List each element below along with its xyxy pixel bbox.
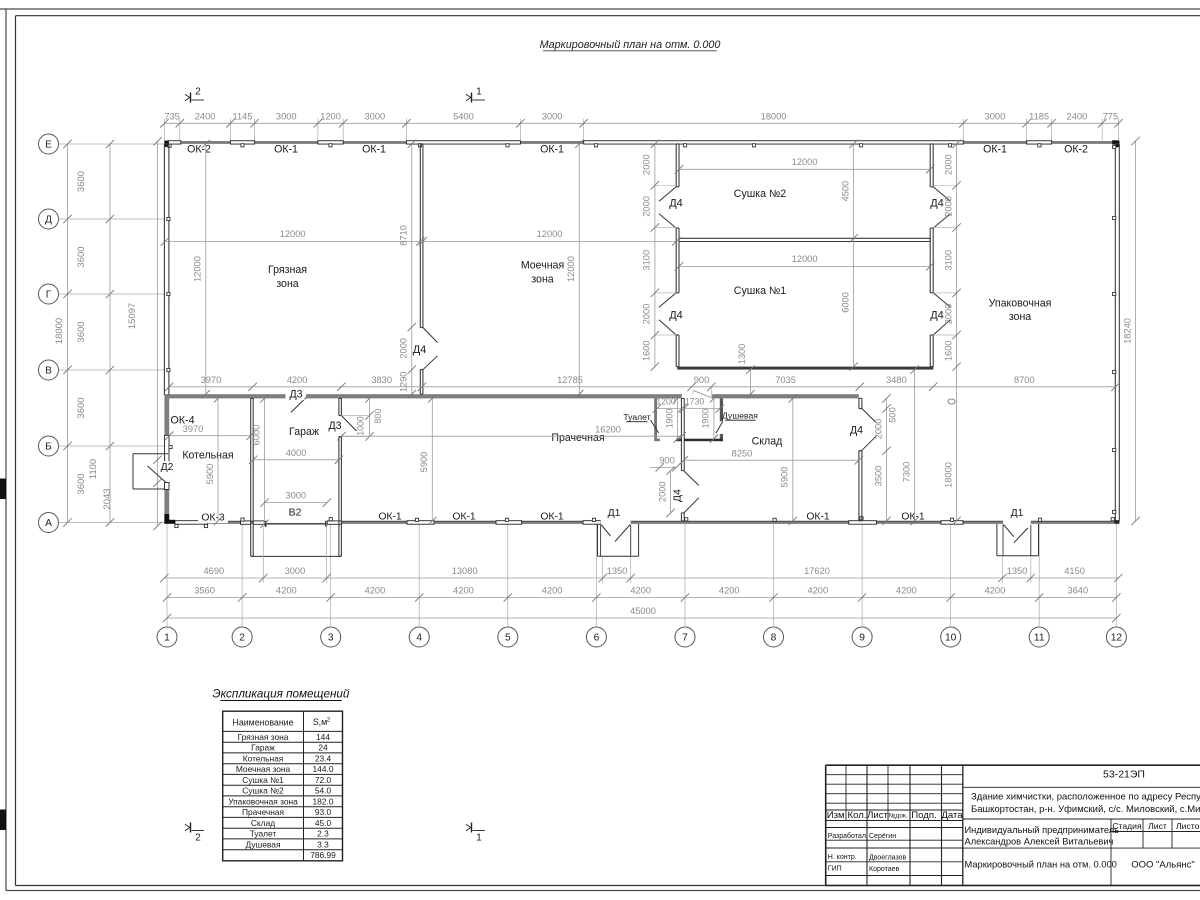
svg-text:2000: 2000 bbox=[642, 196, 652, 217]
svg-text:Маркировочный план на отм. 0.0: Маркировочный план на отм. 0.000 bbox=[540, 39, 721, 51]
svg-text:Д1: Д1 bbox=[1011, 508, 1024, 519]
svg-text:12000: 12000 bbox=[537, 229, 563, 239]
svg-text:ОК-1: ОК-1 bbox=[274, 143, 298, 155]
svg-text:16200: 16200 bbox=[595, 424, 621, 434]
svg-text:12785: 12785 bbox=[557, 375, 583, 385]
svg-text:900: 900 bbox=[659, 456, 675, 466]
svg-text:5900: 5900 bbox=[780, 467, 790, 488]
svg-text:2400: 2400 bbox=[1067, 112, 1088, 122]
svg-text:735: 735 bbox=[164, 112, 180, 122]
svg-text:Двоеглазов: Двоеглазов bbox=[869, 855, 906, 862]
svg-text:2000: 2000 bbox=[873, 419, 883, 440]
svg-text:Сушка №2: Сушка №2 bbox=[242, 786, 284, 796]
svg-text:800: 800 bbox=[373, 409, 383, 424]
svg-text:ОК-1: ОК-1 bbox=[806, 511, 830, 522]
svg-text:1: 1 bbox=[476, 87, 482, 98]
svg-text:13080: 13080 bbox=[452, 566, 478, 576]
svg-text:24: 24 bbox=[318, 743, 328, 753]
svg-text:12000: 12000 bbox=[193, 256, 203, 282]
svg-text:3000: 3000 bbox=[365, 112, 386, 122]
svg-text:Экспликация помещений: Экспликация помещений bbox=[213, 688, 350, 701]
svg-text:17620: 17620 bbox=[804, 566, 830, 576]
svg-text:В2: В2 bbox=[289, 508, 302, 519]
svg-text:ОК-1: ОК-1 bbox=[540, 511, 564, 522]
svg-text:Сушка №2: Сушка №2 bbox=[734, 188, 787, 200]
svg-text:Душевая: Душевая bbox=[722, 410, 758, 420]
svg-text:1000: 1000 bbox=[356, 416, 366, 436]
svg-text:Грязная зона: Грязная зона bbox=[238, 732, 289, 742]
svg-text:3970: 3970 bbox=[183, 424, 204, 434]
svg-text:Сушка №1: Сушка №1 bbox=[242, 775, 284, 785]
svg-text:Прачечная: Прачечная bbox=[242, 807, 284, 817]
svg-text:4200: 4200 bbox=[542, 586, 563, 596]
svg-text:45.0: 45.0 bbox=[315, 818, 332, 828]
svg-text:1290: 1290 bbox=[399, 372, 409, 393]
svg-text:2000: 2000 bbox=[943, 154, 953, 175]
svg-text:5900: 5900 bbox=[205, 464, 215, 485]
svg-text:Листов: Листов bbox=[1176, 821, 1200, 831]
svg-text:Душевая: Душевая bbox=[246, 839, 281, 849]
svg-text:5400: 5400 bbox=[453, 112, 474, 122]
svg-text:Б: Б bbox=[45, 442, 52, 453]
svg-text:Разработал: Разработал bbox=[828, 832, 866, 840]
svg-text:1200: 1200 bbox=[656, 397, 676, 407]
svg-text:Грязная: Грязная bbox=[268, 264, 307, 276]
svg-text:1145: 1145 bbox=[233, 112, 253, 122]
svg-text:2000: 2000 bbox=[943, 196, 953, 217]
svg-text:Здание химчистки, расположенн: Здание химчистки, расположенное по адрес… bbox=[971, 792, 1200, 803]
svg-text:Индивидуальный предприниматель: Индивидуальный предприниматель bbox=[965, 825, 1120, 835]
svg-text:№док.: №док. bbox=[888, 813, 907, 820]
svg-text:ОК-2: ОК-2 bbox=[1064, 143, 1088, 155]
svg-text:8: 8 bbox=[771, 633, 777, 644]
svg-text:4200: 4200 bbox=[807, 586, 828, 596]
svg-text:2000: 2000 bbox=[642, 304, 652, 325]
svg-text:Е: Е bbox=[45, 140, 52, 151]
svg-text:зона: зона bbox=[276, 278, 298, 290]
svg-text:1600: 1600 bbox=[943, 340, 953, 361]
svg-text:Д4: Д4 bbox=[850, 425, 863, 437]
svg-text:6000: 6000 bbox=[251, 425, 261, 446]
svg-text:Александров Алексей Витальевич: Александров Алексей Витальевич bbox=[965, 837, 1114, 847]
svg-text:2000: 2000 bbox=[642, 154, 652, 175]
svg-text:182.0: 182.0 bbox=[313, 796, 334, 806]
svg-text:3830: 3830 bbox=[371, 375, 392, 385]
svg-text:500: 500 bbox=[888, 407, 898, 423]
svg-text:Котельная: Котельная bbox=[243, 753, 284, 763]
svg-text:2.3: 2.3 bbox=[317, 829, 329, 839]
svg-text:Коротаев: Коротаев bbox=[869, 866, 900, 873]
svg-text:Серёгин: Серёгин bbox=[869, 833, 896, 840]
svg-text:Моечная зона: Моечная зона bbox=[236, 764, 291, 774]
svg-text:18000: 18000 bbox=[54, 318, 65, 344]
svg-text:Сушка №1: Сушка №1 bbox=[734, 285, 787, 297]
svg-text:3000: 3000 bbox=[542, 112, 563, 122]
svg-text:ОК-1: ОК-1 bbox=[540, 143, 564, 155]
svg-text:Кол.: Кол. bbox=[848, 810, 867, 821]
svg-text:4690: 4690 bbox=[204, 566, 225, 576]
svg-text:3600: 3600 bbox=[76, 171, 87, 192]
svg-text:Упаковочная зона: Упаковочная зона bbox=[228, 796, 298, 806]
svg-text:3600: 3600 bbox=[76, 246, 87, 267]
svg-text:7300: 7300 bbox=[901, 462, 911, 483]
svg-text:ОК-1: ОК-1 bbox=[452, 511, 476, 522]
svg-text:Гараж: Гараж bbox=[289, 426, 320, 438]
svg-text:3000: 3000 bbox=[285, 566, 306, 576]
svg-text:10: 10 bbox=[945, 633, 957, 644]
svg-text:6000: 6000 bbox=[840, 292, 850, 313]
svg-text:93.0: 93.0 bbox=[315, 807, 332, 817]
svg-text:15097: 15097 bbox=[127, 303, 138, 329]
svg-text:Гараж: Гараж bbox=[251, 743, 275, 753]
svg-text:S,м: S,м bbox=[313, 717, 327, 727]
svg-text:Д4: Д4 bbox=[930, 310, 944, 322]
svg-text:Д3: Д3 bbox=[328, 420, 341, 432]
svg-text:18000: 18000 bbox=[943, 462, 953, 488]
svg-text:786.99: 786.99 bbox=[310, 850, 336, 860]
svg-text:4200: 4200 bbox=[453, 586, 474, 596]
svg-text:3: 3 bbox=[328, 633, 334, 644]
svg-text:зона: зона bbox=[531, 274, 553, 286]
svg-text:4200: 4200 bbox=[985, 586, 1006, 596]
svg-text:Дата: Дата bbox=[941, 810, 963, 821]
svg-text:2: 2 bbox=[239, 633, 245, 644]
svg-text:В: В bbox=[45, 366, 52, 377]
svg-text:Д4: Д4 bbox=[669, 198, 683, 210]
svg-text:Г: Г bbox=[46, 290, 52, 301]
svg-text:ГИП: ГИП bbox=[828, 866, 842, 873]
svg-text:3000: 3000 bbox=[285, 491, 306, 501]
svg-text:53-21ЭП: 53-21ЭП bbox=[1103, 769, 1145, 781]
svg-text:12000: 12000 bbox=[566, 256, 576, 282]
svg-text:1900: 1900 bbox=[701, 409, 711, 429]
svg-text:2: 2 bbox=[195, 833, 201, 844]
svg-text:4200: 4200 bbox=[630, 586, 651, 596]
svg-text:45000: 45000 bbox=[630, 606, 656, 616]
svg-text:ОК-2: ОК-2 bbox=[187, 143, 211, 155]
svg-text:3600: 3600 bbox=[76, 397, 87, 418]
svg-text:Д2: Д2 bbox=[161, 462, 174, 473]
svg-text:Лист: Лист bbox=[867, 810, 888, 821]
svg-text:4200: 4200 bbox=[365, 586, 386, 596]
svg-text:72.0: 72.0 bbox=[315, 775, 332, 785]
svg-text:Д3: Д3 bbox=[289, 388, 302, 400]
svg-text:1300: 1300 bbox=[737, 344, 747, 365]
svg-text:18240: 18240 bbox=[1122, 318, 1132, 344]
svg-text:Стадия: Стадия bbox=[1112, 821, 1142, 831]
svg-text:Н. контр.: Н. контр. bbox=[828, 854, 857, 861]
svg-text:3000: 3000 bbox=[985, 112, 1006, 122]
svg-text:2: 2 bbox=[327, 717, 331, 724]
svg-text:3500: 3500 bbox=[873, 466, 883, 487]
svg-text:Башкортостан, р-н. Уфимский, с: Башкортостан, р-н. Уфимский, с/с. Миловс… bbox=[971, 804, 1200, 815]
svg-text:1100: 1100 bbox=[88, 459, 99, 479]
svg-text:18000: 18000 bbox=[761, 112, 787, 122]
svg-text:1730: 1730 bbox=[685, 397, 705, 407]
svg-text:7035: 7035 bbox=[775, 375, 796, 385]
svg-text:Изм.: Изм. bbox=[827, 810, 848, 821]
svg-text:2000: 2000 bbox=[943, 304, 953, 325]
svg-text:8710: 8710 bbox=[399, 225, 409, 246]
svg-text:4200: 4200 bbox=[287, 375, 308, 385]
svg-text:Туалет: Туалет bbox=[250, 829, 277, 839]
svg-text:Д4: Д4 bbox=[413, 344, 427, 356]
svg-text:1: 1 bbox=[164, 633, 170, 644]
svg-text:2400: 2400 bbox=[195, 112, 216, 122]
svg-text:4: 4 bbox=[416, 633, 422, 644]
svg-text:9: 9 bbox=[859, 633, 865, 644]
svg-text:900: 900 bbox=[694, 375, 710, 385]
svg-text:Наименование: Наименование bbox=[233, 718, 294, 728]
svg-text:ОК-1: ОК-1 bbox=[378, 511, 402, 522]
svg-text:3600: 3600 bbox=[76, 321, 87, 342]
svg-text:12: 12 bbox=[1111, 633, 1123, 644]
svg-text:Туалет: Туалет bbox=[623, 412, 650, 422]
svg-text:Д4: Д4 bbox=[930, 198, 944, 210]
svg-text:4200: 4200 bbox=[719, 586, 740, 596]
svg-text:3480: 3480 bbox=[886, 375, 907, 385]
svg-text:4200: 4200 bbox=[896, 586, 917, 596]
svg-text:8250: 8250 bbox=[732, 448, 753, 458]
svg-text:3100: 3100 bbox=[943, 250, 953, 271]
svg-text:144: 144 bbox=[316, 732, 330, 742]
svg-text:ОК-1: ОК-1 bbox=[983, 143, 1007, 155]
svg-text:Маркировочный план на отм. 0.0: Маркировочный план на отм. 0.000 bbox=[965, 860, 1117, 870]
svg-text:12000: 12000 bbox=[280, 229, 306, 239]
svg-text:1350: 1350 bbox=[607, 566, 628, 576]
svg-text:5900: 5900 bbox=[419, 452, 429, 473]
svg-text:3000: 3000 bbox=[276, 112, 297, 122]
svg-text:2000: 2000 bbox=[657, 481, 667, 502]
svg-text:ОК-1: ОК-1 bbox=[901, 511, 925, 522]
svg-text:3560: 3560 bbox=[194, 586, 215, 596]
svg-text:23.4: 23.4 bbox=[315, 753, 332, 763]
svg-text:2000: 2000 bbox=[399, 338, 409, 359]
svg-text:4000: 4000 bbox=[286, 448, 307, 458]
svg-text:54.0: 54.0 bbox=[315, 786, 332, 796]
svg-text:3600: 3600 bbox=[76, 473, 87, 494]
svg-text:Лист: Лист bbox=[1148, 821, 1167, 831]
svg-text:зона: зона bbox=[1009, 311, 1031, 323]
svg-text:1185: 1185 bbox=[1029, 112, 1049, 122]
svg-text:Упаковочная: Упаковочная bbox=[989, 298, 1052, 310]
svg-text:А: А bbox=[45, 518, 52, 529]
svg-text:144.0: 144.0 bbox=[313, 764, 334, 774]
svg-text:Подп.: Подп. bbox=[911, 810, 936, 821]
svg-text:4200: 4200 bbox=[276, 586, 297, 596]
svg-text:Котельная: Котельная bbox=[182, 450, 233, 462]
svg-text:3640: 3640 bbox=[1067, 586, 1088, 596]
svg-text:Д1: Д1 bbox=[608, 508, 621, 519]
svg-text:4500: 4500 bbox=[840, 181, 850, 202]
svg-text:4150: 4150 bbox=[1064, 566, 1085, 576]
svg-text:3.3: 3.3 bbox=[317, 839, 329, 849]
svg-text:1350: 1350 bbox=[1007, 566, 1028, 576]
svg-text:1200: 1200 bbox=[320, 112, 341, 122]
svg-text:12000: 12000 bbox=[792, 254, 818, 264]
svg-text:1: 1 bbox=[476, 833, 482, 844]
svg-text:3100: 3100 bbox=[642, 250, 652, 271]
svg-text:ООО "Альянс": ООО "Альянс" bbox=[1131, 860, 1195, 871]
svg-text:6: 6 bbox=[594, 633, 600, 644]
svg-text:775: 775 bbox=[1103, 112, 1119, 122]
svg-text:1900: 1900 bbox=[664, 409, 674, 429]
svg-text:12000: 12000 bbox=[792, 157, 818, 167]
svg-text:Склад: Склад bbox=[251, 818, 275, 828]
svg-text:Д: Д bbox=[45, 215, 52, 226]
svg-text:2: 2 bbox=[195, 87, 201, 98]
svg-text:3970: 3970 bbox=[201, 375, 222, 385]
svg-text:7: 7 bbox=[682, 633, 688, 644]
svg-text:Моечная: Моечная bbox=[521, 260, 564, 272]
svg-text:2043: 2043 bbox=[102, 488, 113, 509]
svg-text:11: 11 bbox=[1034, 633, 1045, 644]
svg-text:ОК-1: ОК-1 bbox=[362, 143, 386, 155]
svg-text:Д4: Д4 bbox=[669, 310, 683, 322]
svg-text:8700: 8700 bbox=[1014, 375, 1035, 385]
svg-text:1600: 1600 bbox=[642, 340, 652, 361]
svg-text:5: 5 bbox=[505, 633, 511, 644]
svg-text:Склад: Склад bbox=[752, 436, 783, 448]
svg-text:Д4: Д4 bbox=[672, 489, 684, 502]
